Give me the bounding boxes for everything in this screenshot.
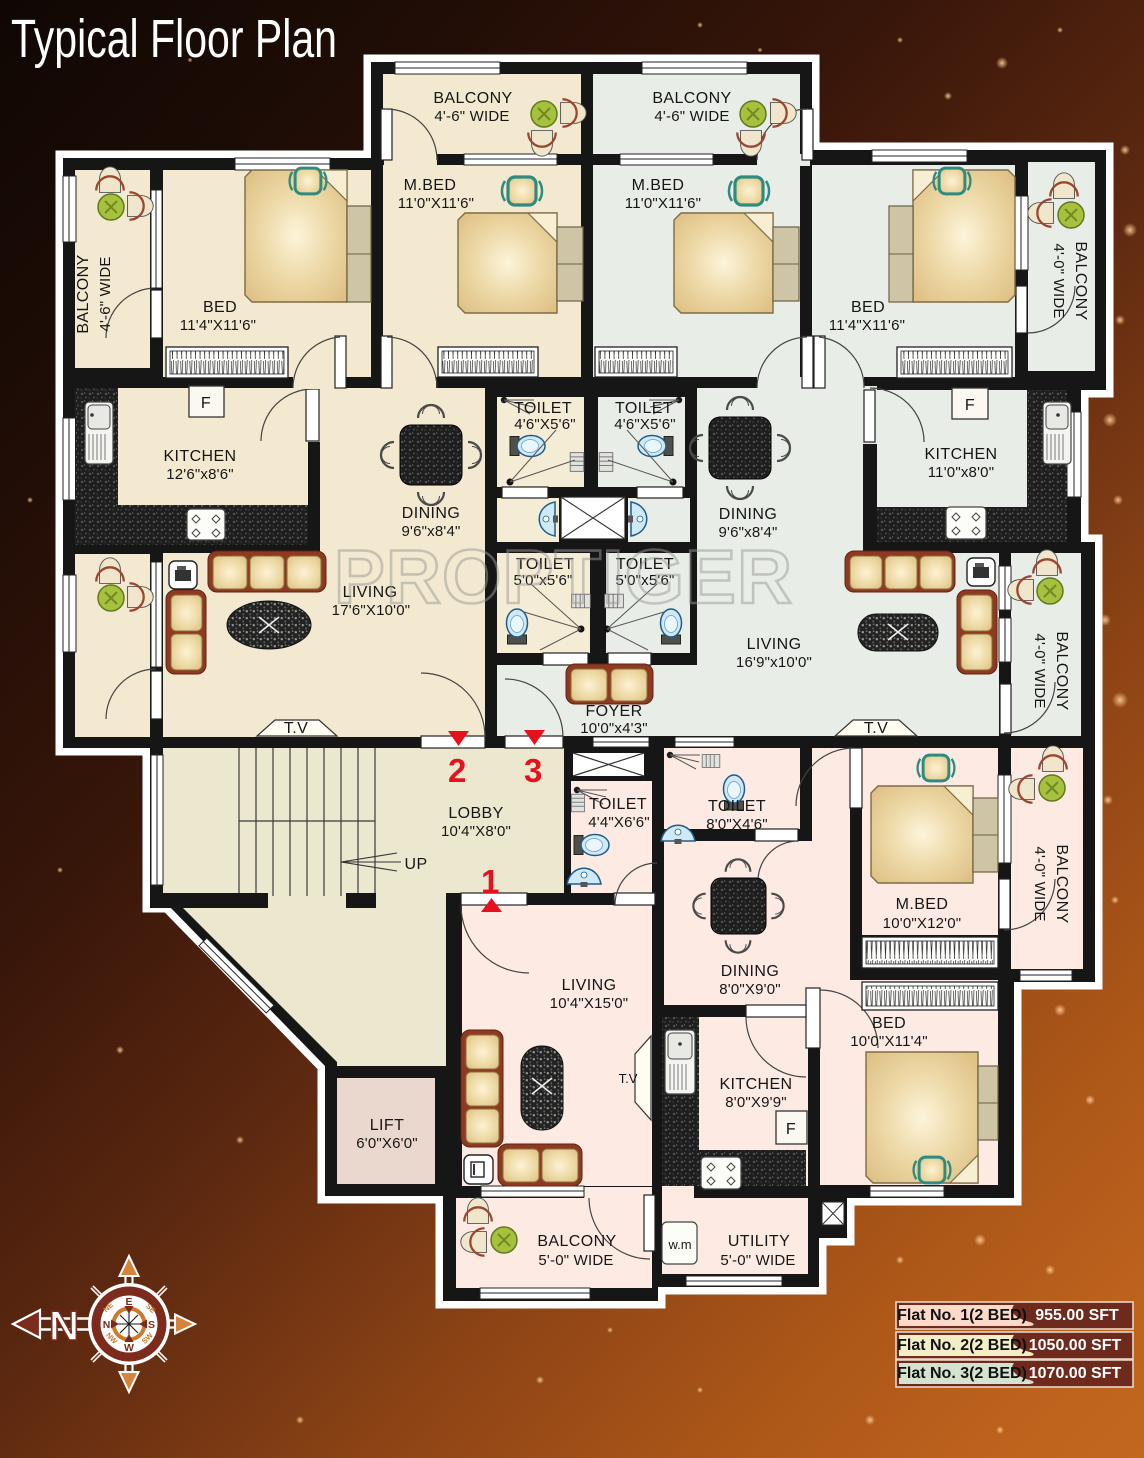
svg-text:M.BED: M.BED (896, 896, 949, 913)
svg-text:T.V: T.V (284, 720, 308, 737)
svg-text:BALCONY: BALCONY (75, 254, 92, 333)
svg-text:BALCONY: BALCONY (1072, 241, 1089, 320)
svg-text:6'0"X6'0": 6'0"X6'0" (356, 1135, 418, 1152)
svg-text:PROPTIGER: PROPTIGER (334, 535, 796, 620)
svg-text:1050.00 SFT: 1050.00 SFT (1029, 1337, 1122, 1354)
svg-text:BALCONY: BALCONY (652, 90, 731, 107)
svg-text:4'-0" WIDE: 4'-0" WIDE (1050, 243, 1067, 318)
svg-text:4'4"X6'6": 4'4"X6'6" (588, 814, 650, 831)
svg-text:3: 3 (524, 752, 542, 789)
svg-text:11'0"X11'6": 11'0"X11'6" (398, 195, 474, 212)
svg-text:UTILITY: UTILITY (728, 1233, 790, 1250)
svg-text:4'-0" WIDE: 4'-0" WIDE (1031, 846, 1048, 921)
svg-text:12'6"x8'6": 12'6"x8'6" (166, 466, 234, 483)
svg-text:F: F (201, 395, 211, 412)
svg-text:4'-6" WIDE: 4'-6" WIDE (654, 108, 729, 125)
svg-text:DINING: DINING (719, 506, 777, 523)
svg-text:4'-6" WIDE: 4'-6" WIDE (97, 256, 114, 331)
svg-text:11'0"x8'0": 11'0"x8'0" (928, 464, 994, 481)
svg-text:11'4"X11'6": 11'4"X11'6" (180, 317, 256, 334)
svg-text:F: F (786, 1121, 796, 1138)
svg-text:W: W (124, 1342, 134, 1354)
svg-text:4'6"X5'6": 4'6"X5'6" (514, 416, 576, 433)
svg-text:1070.00 SFT: 1070.00 SFT (1029, 1365, 1122, 1382)
svg-text:955.00 SFT: 955.00 SFT (1035, 1307, 1119, 1324)
svg-text:11'4"X11'6": 11'4"X11'6" (829, 317, 905, 334)
svg-text:1: 1 (481, 863, 499, 900)
svg-text:4'-0" WIDE: 4'-0" WIDE (1031, 633, 1048, 708)
svg-text:BED: BED (851, 299, 885, 316)
svg-text:M.BED: M.BED (404, 177, 457, 194)
svg-text:BALCONY: BALCONY (433, 90, 512, 107)
svg-text:11'0"X11'6": 11'0"X11'6" (625, 195, 701, 212)
svg-text:BALCONY: BALCONY (1053, 631, 1070, 710)
svg-text:TOILET: TOILET (589, 796, 647, 813)
svg-text:Flat No. 2(2 BED): Flat No. 2(2 BED) (897, 1337, 1027, 1354)
svg-text:LIVING: LIVING (747, 636, 802, 653)
svg-text:KITCHEN: KITCHEN (163, 448, 236, 465)
svg-text:Typical Floor Plan: Typical Floor Plan (11, 9, 337, 69)
svg-text:BED: BED (203, 299, 237, 316)
svg-text:Flat No. 1(2 BED): Flat No. 1(2 BED) (897, 1307, 1027, 1324)
svg-text:10'0"x4'3": 10'0"x4'3" (580, 720, 648, 737)
svg-text:N: N (103, 1319, 111, 1331)
svg-text:8'0"X4'6": 8'0"X4'6" (706, 816, 768, 833)
svg-text:M.BED: M.BED (632, 177, 685, 194)
svg-text:10'0"X12'0": 10'0"X12'0" (883, 915, 962, 932)
svg-text:w.m: w.m (667, 1237, 691, 1252)
svg-text:8'0"X9'9": 8'0"X9'9" (725, 1094, 787, 1111)
svg-text:LIVING: LIVING (562, 977, 617, 994)
svg-text:10'4"X15'0": 10'4"X15'0" (550, 995, 629, 1012)
svg-text:F: F (965, 397, 975, 414)
svg-text:2: 2 (448, 752, 466, 789)
svg-text:E: E (125, 1296, 132, 1308)
svg-text:LOBBY: LOBBY (448, 805, 503, 822)
svg-text:5'-0" WIDE: 5'-0" WIDE (720, 1252, 795, 1269)
svg-text:16'9"x10'0": 16'9"x10'0" (736, 654, 812, 671)
svg-text:KITCHEN: KITCHEN (924, 446, 997, 463)
svg-text:KITCHEN: KITCHEN (719, 1076, 792, 1093)
svg-text:N: N (49, 1302, 79, 1349)
svg-text:Flat No. 3(2 BED): Flat No. 3(2 BED) (897, 1365, 1027, 1382)
svg-text:BED: BED (872, 1015, 906, 1032)
svg-text:4'6"X5'6": 4'6"X5'6" (614, 416, 676, 433)
svg-text:LIFT: LIFT (370, 1117, 405, 1134)
svg-text:8'0"X9'0": 8'0"X9'0" (719, 981, 781, 998)
svg-text:FOYER: FOYER (585, 703, 642, 720)
svg-text:T.V: T.V (619, 1071, 638, 1086)
svg-text:T.V: T.V (864, 720, 888, 737)
svg-text:S: S (148, 1319, 155, 1331)
svg-text:10'0"X11'4": 10'0"X11'4" (850, 1033, 928, 1050)
svg-text:4'-6" WIDE: 4'-6" WIDE (434, 108, 509, 125)
svg-text:DINING: DINING (721, 963, 779, 980)
svg-text:5'-0" WIDE: 5'-0" WIDE (538, 1252, 613, 1269)
svg-text:10'4"X8'0": 10'4"X8'0" (441, 823, 511, 840)
svg-text:BALCONY: BALCONY (1053, 844, 1070, 923)
svg-text:TOILET: TOILET (514, 400, 572, 417)
svg-text:TOILET: TOILET (708, 798, 766, 815)
svg-text:DINING: DINING (402, 505, 460, 522)
svg-text:BALCONY: BALCONY (537, 1233, 616, 1250)
svg-text:UP: UP (404, 856, 427, 873)
svg-text:TOILET: TOILET (615, 400, 673, 417)
